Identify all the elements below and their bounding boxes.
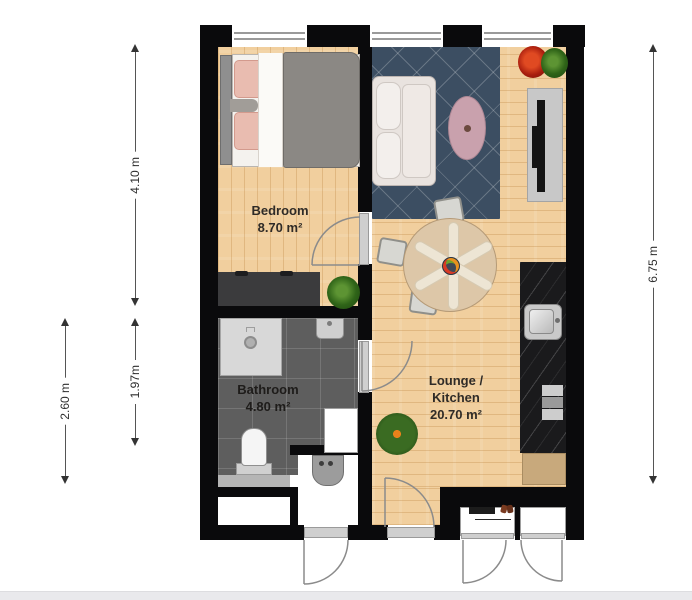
dimension-total-height: 6.75 m — [646, 44, 660, 484]
dimension-line — [65, 326, 66, 378]
dimension-line — [135, 326, 136, 360]
lounge-kitchen-area: 20.70 m² — [396, 407, 516, 424]
arrow-up-icon — [131, 318, 139, 326]
bathroom-label: Bathroom 4.80 m² — [208, 382, 328, 416]
dimension-line — [135, 52, 136, 152]
lounge-kitchen-name-line2: Kitchen — [396, 390, 516, 407]
dimension-line — [653, 287, 654, 476]
dimension-label: 4.10 m — [128, 152, 142, 199]
lounge-kitchen-name-line1: Lounge / — [396, 373, 516, 390]
arrow-up-icon — [649, 44, 657, 52]
floor-plan: Bedroom 8.70 m² Bathroom 4.80 m² Lounge … — [0, 0, 692, 600]
dimension-line — [653, 52, 654, 241]
closet-right-door-swing — [521, 540, 562, 581]
bedroom-label: Bedroom 8.70 m² — [220, 203, 340, 237]
arrow-up-icon — [131, 44, 139, 52]
arrow-down-icon — [131, 438, 139, 446]
bathroom-area: 4.80 m² — [208, 399, 328, 416]
entrance-door-swing — [385, 478, 434, 527]
arrow-down-icon — [131, 298, 139, 306]
lounge-kitchen-label: Lounge / Kitchen 20.70 m² — [396, 373, 516, 424]
bedroom-area: 8.70 m² — [220, 220, 340, 237]
bedroom-name: Bedroom — [220, 203, 340, 220]
dimension-line — [65, 424, 66, 476]
arrow-down-icon — [649, 476, 657, 484]
arrow-down-icon — [61, 476, 69, 484]
dimension-label: 2.60 m — [58, 378, 72, 425]
closet-left-door-swing — [463, 540, 506, 583]
dimension-line — [135, 404, 136, 438]
dimension-bathroom-outer-height: 2.60 m — [58, 318, 72, 484]
arrow-up-icon — [61, 318, 69, 326]
dimension-bathroom-inner-height: 1.97m — [128, 318, 142, 446]
dimension-bedroom-height: 4.10 m — [128, 44, 142, 306]
bathroom-name: Bathroom — [208, 382, 328, 399]
door-swing-arcs — [0, 0, 692, 600]
dimension-label: 6.75 m — [646, 241, 660, 288]
bottom-scroll-bar — [0, 591, 692, 600]
dimension-line — [135, 198, 136, 298]
washing-door-swing — [304, 540, 348, 584]
dimension-label: 1.97m — [128, 360, 142, 403]
